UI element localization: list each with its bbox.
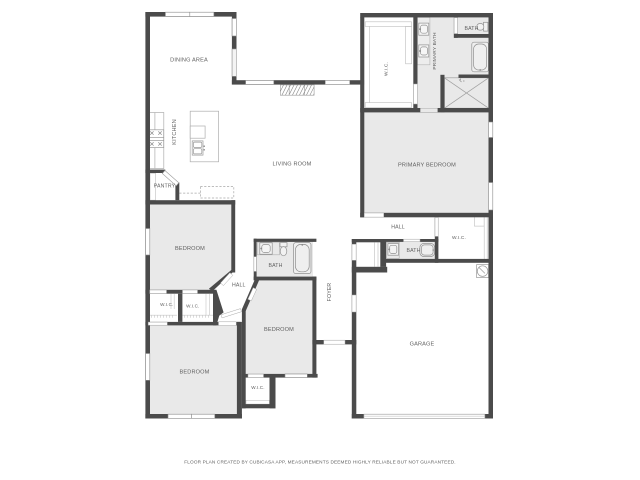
svg-text:PANTRY: PANTRY bbox=[154, 184, 176, 190]
svg-text:LIVING ROOM: LIVING ROOM bbox=[273, 162, 312, 168]
svg-text:W.I.C.: W.I.C. bbox=[384, 62, 390, 76]
svg-text:DINING AREA: DINING AREA bbox=[170, 57, 208, 63]
svg-text:GARAGE: GARAGE bbox=[410, 342, 435, 348]
svg-text:W.I.C.: W.I.C. bbox=[160, 302, 173, 307]
svg-text:HALL: HALL bbox=[391, 225, 405, 231]
svg-text:W.I.C.: W.I.C. bbox=[251, 385, 264, 390]
svg-text:BEDROOM: BEDROOM bbox=[180, 370, 210, 376]
svg-text:BEDROOM: BEDROOM bbox=[264, 327, 294, 333]
svg-text:HALL: HALL bbox=[232, 282, 246, 288]
svg-text:PRIMARY BEDROOM: PRIMARY BEDROOM bbox=[398, 163, 456, 169]
svg-text:FOYER: FOYER bbox=[327, 283, 333, 302]
svg-text:BATH: BATH bbox=[268, 263, 282, 269]
svg-text:PRIMARY BATH: PRIMARY BATH bbox=[432, 32, 438, 70]
svg-text:W.I.C.: W.I.C. bbox=[186, 303, 199, 308]
svg-text:KITCHEN: KITCHEN bbox=[172, 119, 178, 145]
svg-text:FLOOR PLAN CREATED BY CUBICASA: FLOOR PLAN CREATED BY CUBICASA APP, MEAS… bbox=[184, 460, 455, 465]
svg-text:W.I.C.: W.I.C. bbox=[452, 235, 466, 241]
svg-text:BEDROOM: BEDROOM bbox=[175, 246, 205, 252]
svg-text:BATH: BATH bbox=[406, 248, 420, 254]
svg-text:BATH: BATH bbox=[464, 26, 478, 32]
